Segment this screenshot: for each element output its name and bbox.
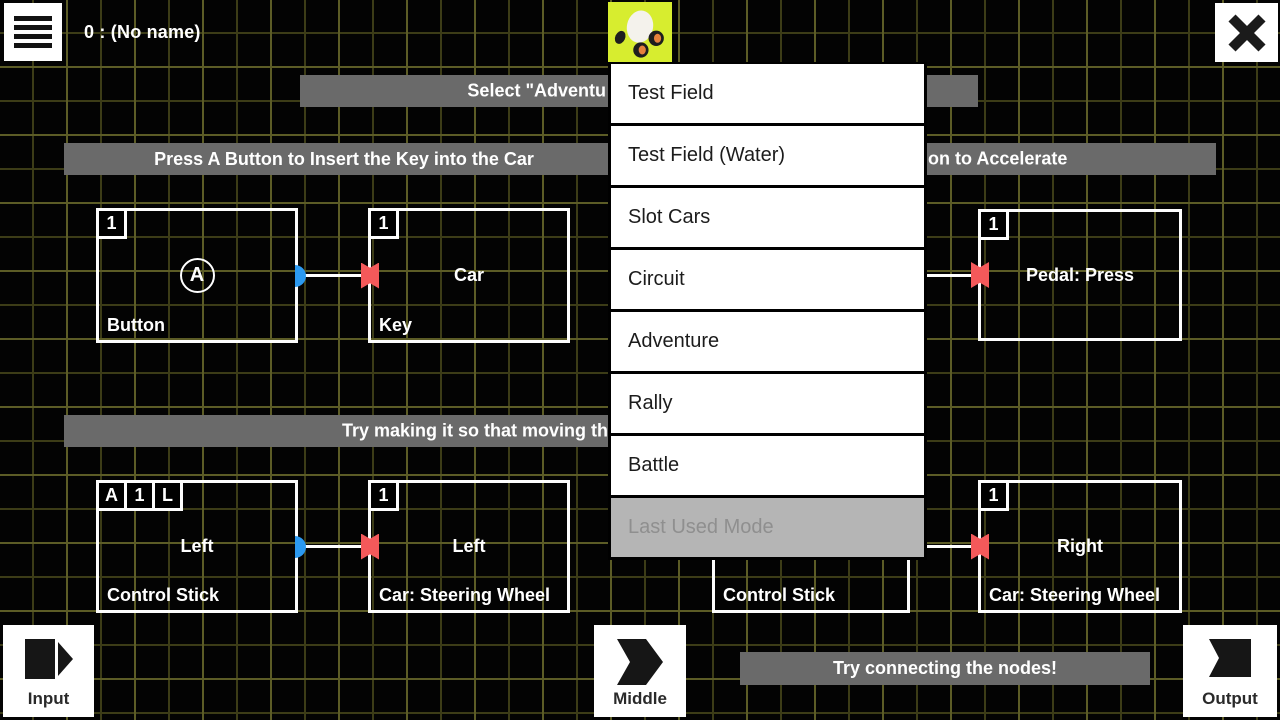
node-setting-label: Car bbox=[454, 265, 484, 286]
input-nodes-button[interactable]: Input bbox=[3, 625, 94, 717]
output-port[interactable] bbox=[295, 536, 306, 558]
node-pedal-press-output[interactable]: 1 Pedal: Press bbox=[978, 209, 1182, 341]
node-steering-wheel-left[interactable]: 1 Left Car: Steering Wheel bbox=[368, 480, 570, 613]
menu-item-adventure[interactable]: Adventure bbox=[611, 312, 924, 371]
mode-menu: Test Field Test Field (Water) Slot Cars … bbox=[608, 62, 927, 560]
output-nodes-button[interactable]: Output bbox=[1183, 625, 1277, 717]
node-setting-label: Pedal: Press bbox=[1026, 265, 1134, 286]
node-type-label: Key bbox=[379, 315, 412, 336]
node-type-label: Control Stick bbox=[723, 585, 835, 606]
close-button[interactable] bbox=[1215, 3, 1278, 62]
input-port[interactable] bbox=[971, 534, 989, 560]
output-port[interactable] bbox=[295, 265, 306, 287]
wire-button-to-key bbox=[296, 274, 372, 277]
hamburger-icon bbox=[14, 16, 52, 21]
a-button-icon: A bbox=[180, 258, 215, 293]
node-control-stick-left[interactable]: A 1 L Left Control Stick bbox=[96, 480, 298, 613]
hint-banner-insert-key: Press A Button to Insert the Key into th… bbox=[64, 143, 624, 175]
menu-item-rally[interactable]: Rally bbox=[611, 374, 924, 433]
node-type-label: Button bbox=[107, 315, 165, 336]
input-port[interactable] bbox=[971, 262, 989, 288]
output-node-icon bbox=[1209, 639, 1251, 677]
node-button-input[interactable]: 1 A Button bbox=[96, 208, 298, 343]
menu-item-test-field-water[interactable]: Test Field (Water) bbox=[611, 126, 924, 185]
middle-nodes-button[interactable]: Middle bbox=[594, 625, 686, 717]
input-port[interactable] bbox=[361, 263, 379, 289]
node-type-label: Control Stick bbox=[107, 585, 219, 606]
input-port[interactable] bbox=[361, 534, 379, 560]
menu-item-circuit[interactable]: Circuit bbox=[611, 250, 924, 309]
node-type-label: Car: Steering Wheel bbox=[989, 585, 1160, 606]
node-steering-wheel-right[interactable]: 1 Right Car: Steering Wheel bbox=[978, 480, 1182, 613]
menu-item-last-used-mode: Last Used Mode bbox=[611, 498, 924, 557]
middle-node-icon bbox=[617, 639, 663, 685]
toy-con-garage-canvas[interactable]: { "header": { "title": "0 : (No name)" }… bbox=[0, 0, 1280, 720]
menu-item-slot-cars[interactable]: Slot Cars bbox=[611, 188, 924, 247]
node-setting-label: Left bbox=[181, 536, 214, 557]
node-type-label: Car: Steering Wheel bbox=[379, 585, 550, 606]
wire-stick-to-steering-left bbox=[296, 545, 372, 548]
menu-item-test-field[interactable]: Test Field bbox=[611, 64, 924, 123]
menu-item-battle[interactable]: Battle bbox=[611, 436, 924, 495]
mode-select-button[interactable] bbox=[608, 2, 672, 62]
car-icon bbox=[611, 5, 669, 59]
close-icon bbox=[1225, 11, 1269, 55]
node-setting-label: Left bbox=[453, 536, 486, 557]
project-title: 0 : (No name) bbox=[84, 22, 201, 43]
hint-banner-connect-nodes: Try connecting the nodes! bbox=[740, 652, 1150, 685]
input-node-icon bbox=[25, 639, 73, 679]
hint-banner-accelerate: on to Accelerate bbox=[902, 143, 1216, 175]
node-setting-label: Right bbox=[1057, 536, 1103, 557]
main-menu-button[interactable] bbox=[4, 3, 62, 61]
hint-banner-steering: Try making it so that moving th bbox=[64, 415, 626, 447]
node-car-key-output[interactable]: 1 Car Key bbox=[368, 208, 570, 343]
